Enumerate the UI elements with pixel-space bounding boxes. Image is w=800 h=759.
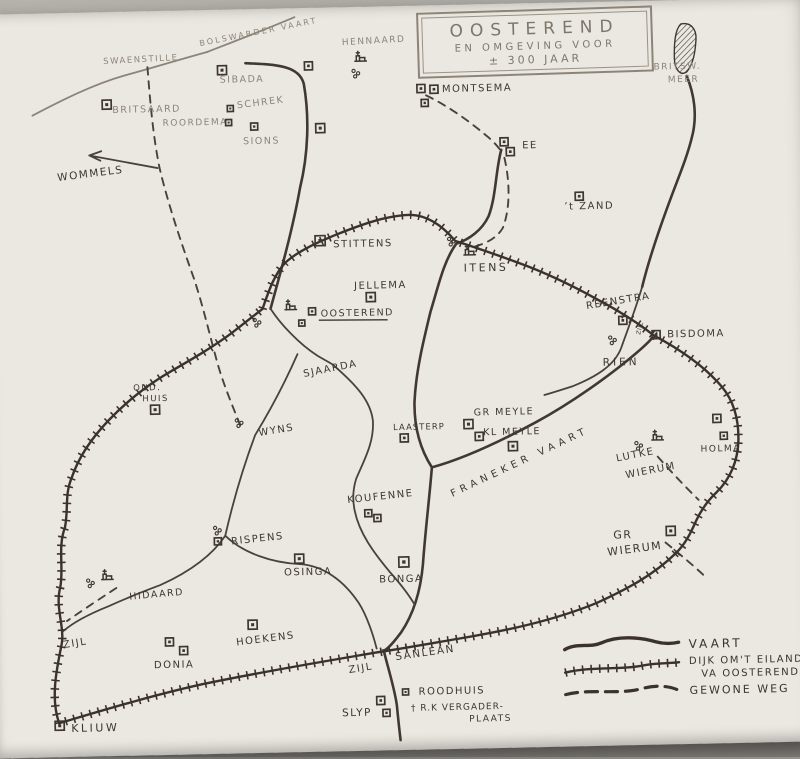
map-label-swaenstille: SWAENSTILLE — [103, 53, 179, 67]
farm-square-symbol — [374, 514, 381, 521]
map-label-r-k-vergader: † R.K VERGADER- — [411, 702, 504, 714]
map-label-itens: ITENS — [464, 261, 509, 275]
small-dots-symbol — [213, 526, 221, 535]
map-label-laasterp: LAASTERP — [393, 422, 445, 433]
map-label-rien: RIEN — [603, 356, 640, 369]
farm-square-symbol — [316, 124, 325, 133]
map-label-sions: SIONS — [243, 135, 280, 147]
map-paper: SWAENSTILLEBOLSWARDER VAARTSIBADABRITSAA… — [0, 0, 800, 759]
map-legend: VAART DIJK OM'T EILAND VA OOSTEREND GEWO… — [561, 632, 800, 702]
farm-square-symbol — [377, 696, 385, 704]
map-label-wierum-lutke: WIERUM — [625, 461, 677, 482]
church-symbol — [285, 300, 297, 310]
farm-square-symbol — [464, 420, 473, 429]
map-label-koufenne: KOUFENNE — [347, 488, 414, 506]
map-label-plaats: PLAATS — [469, 714, 512, 725]
map-label-wyns: WYNS — [258, 422, 295, 439]
small-dots-symbol — [87, 579, 95, 588]
farm-square-symbol — [309, 308, 316, 315]
map-label-oud: OUD. — [133, 383, 161, 394]
farm-square-symbol — [248, 620, 257, 629]
small-dots-symbol — [352, 69, 360, 78]
farm-square-symbol — [500, 138, 508, 146]
map-label-roodhuis: ROODHUIS — [418, 685, 485, 697]
dike-ticks — [261, 210, 655, 344]
map-label-montsema: MONTSEMA — [442, 83, 512, 95]
farm-square-symbol — [180, 647, 188, 655]
map-label-britsaard: BRITSAARD — [112, 104, 181, 116]
map-label-schrek: SCHREK — [236, 94, 285, 111]
farm-square-symbol — [475, 432, 483, 440]
legend-label-dijk-line2: VA OOSTEREND — [701, 666, 800, 681]
farm-square-symbol — [295, 554, 304, 563]
map-label-osinga: OSINGA — [284, 566, 332, 578]
map-label-sibada: SIBADA — [220, 74, 265, 86]
farm-square-symbol — [299, 320, 305, 326]
map-label-slyp: SLYP — [342, 707, 372, 720]
farm-square-symbol — [575, 192, 583, 200]
farm-square-symbol — [720, 432, 727, 439]
farm-square-symbol — [102, 100, 111, 109]
map-label-stittens: STITTENS — [333, 238, 393, 250]
map-label-rispens: RISPENS — [231, 531, 285, 548]
map-label-t-zand: ’t ZAND — [564, 201, 614, 213]
map-label-jellema: JELLEMA — [353, 280, 407, 292]
legend-label-vaart: VAART — [688, 636, 742, 651]
farm-square-symbol — [383, 709, 390, 716]
legend-sample-dijk — [562, 657, 682, 682]
church-symbol — [355, 51, 367, 61]
map-label-holma: HOLMA — [700, 444, 740, 455]
farm-square-symbol — [666, 526, 675, 535]
map-label-hennaard: HENNAARD — [342, 35, 406, 49]
map-label-ee: EE — [522, 140, 538, 151]
legend-sample-vaart — [561, 634, 681, 657]
title-line3: ± 300 JAAR — [489, 51, 583, 67]
farm-square-symbol — [430, 85, 438, 93]
map-label-roordema: ROORDEMA — [163, 118, 228, 129]
map-label-gr: GR — [613, 528, 632, 541]
map-label-lutke: LUTKE — [615, 446, 655, 464]
map-label-sanlean: SANLEAN — [395, 643, 456, 663]
farm-square-symbol — [399, 557, 409, 567]
map-label-meer: MEER — [668, 75, 700, 86]
farm-square-symbol — [217, 66, 226, 75]
title-box: OOSTEREND EN OMGEVING VOOR ± 300 JAAR — [416, 5, 654, 78]
farm-square-symbol — [227, 105, 233, 111]
title-line1: OOSTEREND — [449, 16, 620, 41]
legend-item-dijk: DIJK OM'T EILAND VA OOSTEREND — [562, 653, 800, 684]
small-dots-symbol — [609, 336, 617, 345]
map-label-wierum-gr: WIERUM — [607, 539, 663, 559]
map-label-donia: DONIA — [154, 659, 195, 671]
map-label-britsw: BRITSW. — [653, 62, 701, 73]
map-label-kl-meyle: KL MEYLE — [483, 426, 541, 438]
map-label-huis: HUIS — [142, 394, 169, 405]
legend-sample-weg — [562, 682, 682, 701]
farm-square-symbol — [151, 405, 160, 414]
farm-square-symbol — [400, 434, 408, 442]
farm-square-symbol — [403, 689, 409, 695]
map-label-bonga: BONGA — [379, 574, 423, 586]
legend-label-weg: GEWONE WEG — [689, 681, 789, 696]
map-label-gr-meyle: GR MEYLE — [474, 406, 534, 418]
map-label-bolswarder-vaart: BOLSWARDER VAART — [199, 16, 319, 48]
farm-square-symbol — [366, 293, 375, 302]
map-label-bisdoma: BISDOMA — [667, 328, 725, 340]
farm-square-symbol — [304, 62, 312, 70]
church-symbol — [652, 430, 664, 440]
legend-label-dijk: DIJK OM'T EILAND VA OOSTEREND — [689, 653, 800, 681]
farm-square-symbol — [165, 638, 173, 646]
farm-square-symbol — [508, 442, 517, 451]
farm-square-symbol — [506, 148, 514, 156]
church-symbol — [101, 570, 113, 580]
map-label-sjaarda: SJAARDA — [302, 359, 358, 380]
farm-square-symbol — [251, 123, 258, 130]
dike-north — [261, 210, 655, 344]
map-label-hidaard: HIDAARD — [129, 587, 185, 603]
map-label-hoekens: HOEKENS — [236, 630, 296, 648]
farm-square-symbol — [417, 84, 425, 92]
farm-square-symbol — [713, 414, 721, 422]
map-label-kliuw: KLIUW — [71, 721, 119, 735]
farm-square-symbol — [421, 99, 428, 106]
map-label-zijl-sanlean: ZIJL — [348, 661, 374, 676]
map-label-oosterend: OOSTEREND — [321, 307, 395, 320]
farm-square-symbol — [365, 510, 372, 517]
map-label-wommels: WOMMELS — [57, 164, 124, 184]
